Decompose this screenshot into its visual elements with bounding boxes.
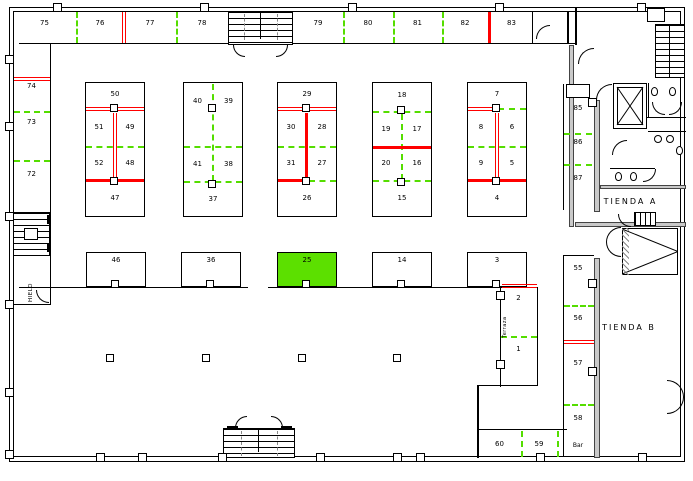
stall-8[interactable]: 8: [467, 108, 495, 146]
stall-number: 20: [382, 159, 391, 167]
stall-47[interactable]: 47: [85, 181, 145, 215]
column-post: [588, 279, 597, 288]
wall: [646, 117, 686, 118]
entrance-stairs: [223, 428, 295, 458]
stall-number: 72: [27, 170, 36, 178]
stall-81[interactable]: 81: [393, 12, 442, 43]
stall-number: 81: [413, 19, 422, 27]
stall-80[interactable]: 80: [343, 12, 393, 43]
column-post: [96, 453, 105, 462]
stall-number: 77: [146, 19, 155, 27]
elevator: [613, 83, 647, 129]
toilet-icon: [615, 172, 622, 181]
divider-red: [502, 284, 537, 288]
stall-37[interactable]: 37: [183, 182, 243, 215]
column-post: [138, 453, 147, 462]
column-post: [200, 3, 209, 12]
column-post: [218, 453, 227, 462]
door-jamb: [47, 243, 49, 252]
wall: [13, 304, 51, 305]
stall-number: 7: [495, 90, 499, 98]
wall: [532, 12, 533, 43]
door-jamb: [281, 426, 292, 428]
column-post: [316, 453, 325, 462]
stall-77[interactable]: 77: [124, 12, 176, 43]
stall-40[interactable]: 40: [183, 82, 212, 146]
stairs-guide: [277, 14, 278, 40]
stairs-landing: [24, 228, 38, 240]
stall-number: 9: [479, 159, 483, 167]
stall-number: 49: [126, 123, 135, 131]
stall-number: 3: [495, 256, 499, 264]
stall-number: 48: [126, 159, 135, 167]
door-jamb: [227, 426, 238, 428]
escalator-hatch: [622, 228, 629, 275]
terraza-label: Terraza: [502, 300, 508, 338]
stall-60[interactable]: 60: [478, 430, 521, 457]
column-post: [393, 453, 402, 462]
column-post: [588, 367, 597, 376]
stall-39[interactable]: 39: [214, 82, 243, 146]
stall-79[interactable]: 79: [293, 12, 343, 43]
sink-icon: [654, 135, 662, 143]
stall-9[interactable]: 9: [467, 147, 495, 179]
stall-51[interactable]: 51: [85, 108, 113, 146]
stall-number: 51: [95, 123, 104, 131]
stall-number: 85: [574, 104, 583, 112]
toilet-icon: [669, 87, 676, 96]
stall-number: 79: [314, 19, 323, 27]
stall-number: 25: [303, 256, 312, 264]
stall-26[interactable]: 26: [277, 181, 337, 215]
wall: [537, 287, 538, 385]
stall-29[interactable]: 29: [277, 82, 337, 106]
column-post: [536, 453, 545, 462]
column-post: [496, 360, 505, 369]
floor-plan: 75 76 77 78 79 80 81 82 83 74 73 72 HIEL…: [0, 0, 693, 481]
wall: [478, 385, 538, 386]
stall-49[interactable]: 49: [115, 108, 145, 146]
stairs-guide: [244, 14, 245, 40]
stall-number: 6: [510, 123, 514, 131]
stall-number: 16: [413, 159, 422, 167]
bar-label: Bar: [573, 442, 583, 449]
stall-85[interactable]: 85: [563, 84, 593, 133]
stall-1[interactable]: 1: [500, 338, 537, 385]
stall-4[interactable]: 4: [467, 181, 527, 215]
stall-number: 14: [398, 256, 407, 264]
stall-number: 17: [413, 125, 422, 133]
stall-38[interactable]: 38: [214, 146, 243, 181]
stall-19[interactable]: 19: [372, 111, 400, 146]
stall-number: 28: [318, 123, 327, 131]
stall-7[interactable]: 7: [467, 82, 527, 106]
stall-58[interactable]: 58: [563, 404, 593, 434]
stall-56[interactable]: 56: [563, 305, 593, 340]
stairs-landing: [647, 8, 665, 22]
floor-column: [298, 354, 306, 362]
stall-number: 8: [479, 123, 483, 131]
stairs-guide: [241, 431, 242, 456]
toilet-icon: [651, 87, 658, 96]
stall-16[interactable]: 16: [402, 147, 432, 179]
stall-41[interactable]: 41: [183, 146, 212, 181]
stall-17[interactable]: 17: [402, 111, 432, 146]
hielo-label: HIELO: [28, 262, 34, 302]
stairs-guide: [277, 431, 278, 456]
stall-75[interactable]: 75: [13, 12, 76, 43]
column-post: [348, 3, 357, 12]
stall-number: 2: [516, 294, 520, 302]
stall-27[interactable]: 27: [307, 147, 337, 179]
stall-number: 58: [574, 414, 583, 422]
column-post: [5, 450, 14, 459]
column-post: [637, 3, 646, 12]
door-jamb: [47, 215, 49, 224]
wall: [648, 83, 649, 118]
stall-number: 80: [364, 19, 373, 27]
stall-number: 30: [287, 123, 296, 131]
stall-50[interactable]: 50: [85, 82, 145, 106]
service-wall: [594, 258, 600, 458]
stall-number: 31: [287, 159, 296, 167]
column-post: [495, 3, 504, 12]
wall: [19, 43, 575, 44]
stall-18[interactable]: 18: [372, 82, 432, 108]
stall-number: 47: [111, 194, 120, 202]
stall-82[interactable]: 82: [442, 12, 488, 43]
stall-number: 40: [193, 97, 202, 105]
stall-83[interactable]: 83: [491, 12, 532, 43]
stall-48[interactable]: 48: [115, 147, 145, 179]
stall-number: 60: [495, 440, 504, 448]
stall-number: 52: [95, 159, 104, 167]
toilet-icon: [676, 146, 683, 155]
junction-post: [302, 280, 310, 288]
stall-number: 57: [574, 359, 583, 367]
floor-column: [202, 354, 210, 362]
stall-31[interactable]: 31: [277, 147, 305, 179]
column-post: [496, 291, 505, 300]
stall-number: 73: [27, 118, 36, 126]
stall-5[interactable]: 5: [497, 147, 527, 179]
tienda-b-label: TIENDA B: [602, 323, 656, 332]
stall-number: 19: [382, 125, 391, 133]
stall-number: 4: [495, 194, 499, 202]
stall-number: 27: [318, 159, 327, 167]
stall-number: 26: [303, 194, 312, 202]
stall-20[interactable]: 20: [372, 147, 400, 179]
stairs-rail: [258, 428, 259, 452]
floor-column: [106, 354, 114, 362]
stall-number: 55: [574, 264, 583, 272]
stall-number: 50: [111, 90, 120, 98]
entry-steps: [634, 212, 656, 226]
stall-number: 5: [510, 159, 514, 167]
tienda-a-area[interactable]: TIENDA A: [577, 188, 684, 214]
stall-number: 18: [398, 91, 407, 99]
stall-number: 1: [516, 345, 520, 353]
wall: [50, 43, 51, 210]
stall-28[interactable]: 28: [307, 108, 337, 146]
stall-number: 87: [574, 174, 583, 182]
stall-15[interactable]: 15: [372, 181, 432, 215]
stall-30[interactable]: 30: [277, 108, 305, 146]
stall-52[interactable]: 52: [85, 147, 113, 179]
divider-green: [557, 431, 559, 457]
wall: [567, 11, 569, 43]
stall-72[interactable]: 72: [13, 160, 50, 210]
stall-number: 59: [535, 440, 544, 448]
column-post: [53, 3, 62, 12]
stall-78[interactable]: 78: [176, 12, 228, 43]
toilet-icon: [630, 172, 637, 181]
column-post: [5, 388, 14, 397]
stairs-top-right: [655, 24, 685, 78]
stall-74[interactable]: 74: [13, 79, 50, 111]
stall-86[interactable]: 86: [563, 133, 593, 164]
stall-73[interactable]: 73: [13, 111, 50, 160]
stall-number: 37: [209, 195, 218, 203]
stall-number: 29: [303, 90, 312, 98]
column-post: [5, 300, 14, 309]
stairs-rail: [669, 24, 670, 78]
junction-post: [111, 280, 119, 288]
stall-number: 41: [193, 160, 202, 168]
column-post: [638, 453, 647, 462]
wall: [575, 8, 577, 45]
escalator-icon: [622, 228, 678, 275]
column-post: [5, 122, 14, 131]
stall-number: 39: [224, 97, 233, 105]
stall-number: 38: [224, 160, 233, 168]
wall: [648, 131, 686, 132]
stall-6[interactable]: 6: [497, 108, 527, 146]
stall-number: 15: [398, 194, 407, 202]
tienda-a-label: TIENDA A: [604, 197, 658, 206]
stairs-rail: [260, 11, 261, 39]
junction-post: [206, 280, 214, 288]
tienda-b-area[interactable]: TIENDA B: [598, 312, 660, 342]
stall-76[interactable]: 76: [76, 12, 124, 43]
stall-number: 86: [574, 138, 583, 146]
stall-number: 76: [96, 19, 105, 27]
sink-icon: [666, 135, 674, 143]
floor-column: [393, 354, 401, 362]
stall-number: 74: [27, 82, 36, 90]
column-post: [5, 212, 14, 221]
bar-area[interactable]: Bar: [563, 434, 593, 457]
stall-number: 82: [461, 19, 470, 27]
stall-number: 78: [198, 19, 207, 27]
column-post: [5, 55, 14, 64]
column-post: [416, 453, 425, 462]
stall-number: 56: [574, 314, 583, 322]
stall-number: 36: [207, 256, 216, 264]
wall: [564, 255, 594, 256]
stall-number: 46: [112, 256, 121, 264]
stall-number: 83: [507, 19, 516, 27]
junction-post: [397, 280, 405, 288]
junction-post: [492, 280, 500, 288]
stall-number: 75: [40, 19, 49, 27]
